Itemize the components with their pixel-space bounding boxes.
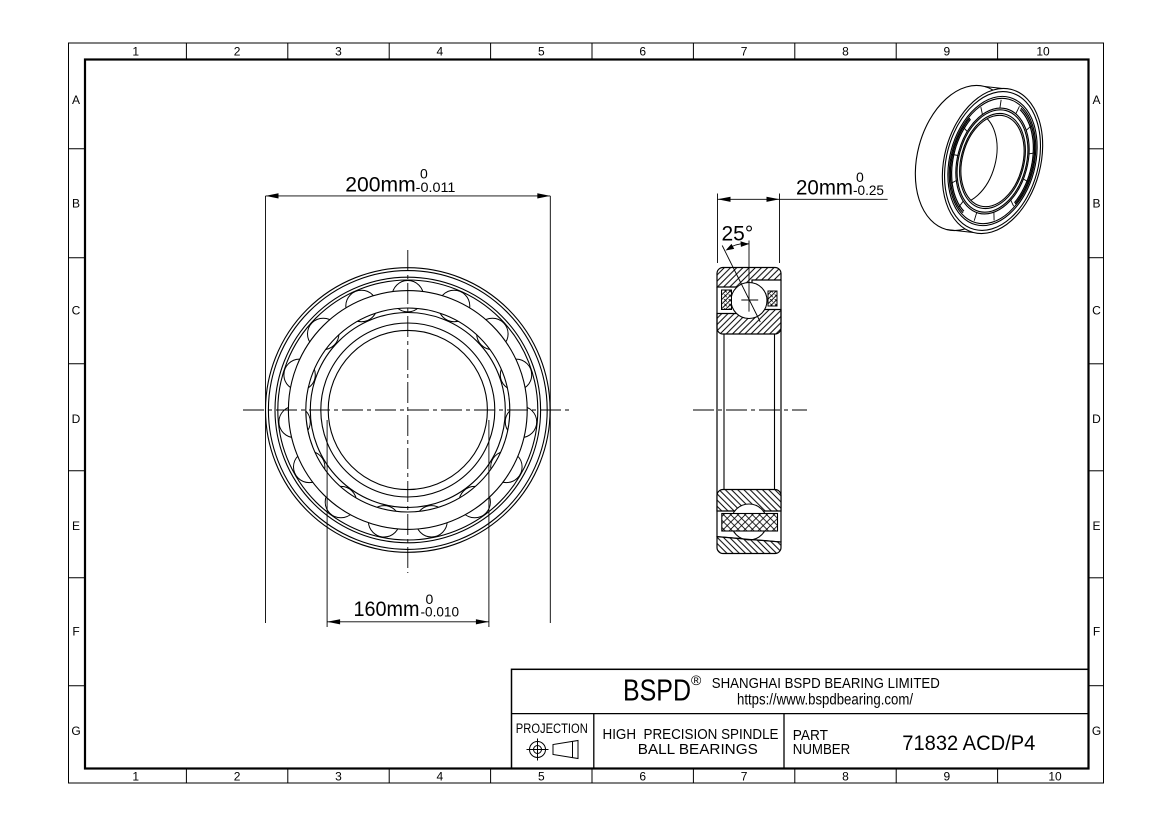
svg-text:0: 0 xyxy=(420,166,428,182)
svg-text:NUMBER: NUMBER xyxy=(793,742,850,758)
svg-text:C: C xyxy=(1092,304,1101,318)
svg-text:10: 10 xyxy=(1048,770,1062,784)
svg-text:7: 7 xyxy=(741,770,748,784)
svg-text:BSPD: BSPD xyxy=(623,672,691,707)
svg-text:0: 0 xyxy=(426,591,434,607)
svg-text:F: F xyxy=(72,625,79,639)
svg-text:G: G xyxy=(1092,724,1101,738)
svg-text:5: 5 xyxy=(538,770,545,784)
svg-text:BALL BEARINGS: BALL BEARINGS xyxy=(638,742,758,758)
svg-text:3: 3 xyxy=(335,45,342,59)
svg-text:C: C xyxy=(72,304,81,318)
svg-text:A: A xyxy=(72,93,80,107)
svg-text:9: 9 xyxy=(944,770,951,784)
svg-text:1: 1 xyxy=(132,45,139,59)
svg-text:7: 7 xyxy=(741,45,748,59)
svg-text:71832 ACD/P4: 71832 ACD/P4 xyxy=(902,731,1035,755)
svg-text:®: ® xyxy=(691,672,702,688)
svg-text:E: E xyxy=(72,519,80,533)
svg-text:8: 8 xyxy=(842,770,849,784)
svg-text:9: 9 xyxy=(944,45,951,59)
svg-text:0: 0 xyxy=(856,169,864,185)
svg-text:https://www.bspdbearing.com/: https://www.bspdbearing.com/ xyxy=(737,692,914,709)
svg-text:6: 6 xyxy=(639,770,646,784)
svg-text:SHANGHAI BSPD BEARING LIMITED: SHANGHAI BSPD BEARING LIMITED xyxy=(712,676,940,692)
svg-text:3: 3 xyxy=(335,770,342,784)
svg-text:1: 1 xyxy=(132,770,139,784)
svg-text:10: 10 xyxy=(1036,45,1050,59)
svg-text:6: 6 xyxy=(639,45,646,59)
svg-text:5: 5 xyxy=(538,45,545,59)
svg-text:G: G xyxy=(71,724,80,738)
svg-text:8: 8 xyxy=(842,45,849,59)
svg-text:2: 2 xyxy=(234,45,241,59)
svg-text:PROJECTION: PROJECTION xyxy=(516,721,588,736)
svg-text:D: D xyxy=(72,412,81,426)
svg-text:4: 4 xyxy=(437,45,444,59)
svg-text:HIGH PRECISION SPINDLE: HIGH PRECISION SPINDLE xyxy=(603,727,779,743)
svg-text:B: B xyxy=(72,197,80,211)
svg-text:20mm: 20mm xyxy=(796,177,853,200)
svg-text:B: B xyxy=(1092,197,1100,211)
svg-text:160mm: 160mm xyxy=(354,598,420,621)
svg-text:A: A xyxy=(1092,93,1100,107)
svg-text:E: E xyxy=(1092,519,1100,533)
svg-text:25°: 25° xyxy=(722,223,754,246)
svg-text:D: D xyxy=(1092,412,1101,426)
svg-text:4: 4 xyxy=(437,770,444,784)
svg-text:200mm: 200mm xyxy=(345,174,415,197)
svg-text:2: 2 xyxy=(234,770,241,784)
svg-text:F: F xyxy=(1093,625,1100,639)
